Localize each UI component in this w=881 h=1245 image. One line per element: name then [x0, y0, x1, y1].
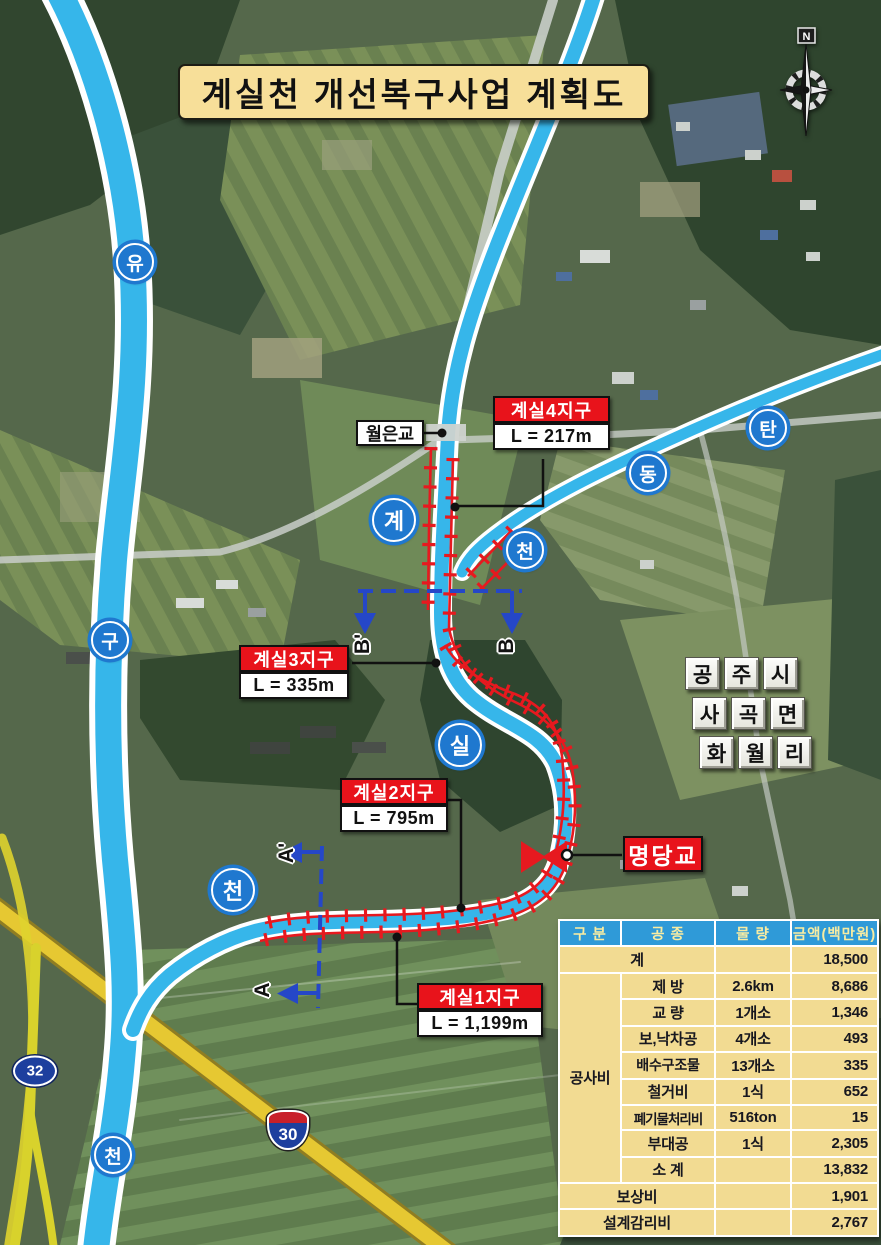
district-label-2: 계실2지구 L = 795m	[340, 778, 448, 832]
stream-marker-tandong-3: 천	[506, 531, 544, 569]
stream-marker-gyesil-1: 계	[372, 498, 416, 542]
col-category: 구 분	[559, 920, 621, 946]
section-letter-a-prime: A'	[275, 843, 299, 863]
admin-tile: 주	[724, 657, 759, 690]
wolleun-bridge-label: 월은교	[356, 420, 424, 446]
section-letter-b-prime: B'	[351, 634, 375, 654]
compass-rose-icon: N	[774, 26, 838, 138]
table-row-total: 계 18,500	[559, 946, 878, 972]
admin-tile: 공	[685, 657, 720, 690]
stream-marker-gyesil-3: 천	[211, 868, 255, 912]
col-quantity: 물 량	[715, 920, 791, 946]
section-letter-b: B	[495, 638, 519, 653]
admin-tile: 사	[692, 697, 727, 730]
table-row: 공사비 제 방 2.6km 8,686	[559, 973, 878, 999]
district-label-1: 계실1지구 L = 1,199m	[417, 983, 543, 1037]
admin-tile: 면	[770, 697, 805, 730]
page-title-text: 계실천 개선복구사업 계획도	[202, 68, 627, 116]
stream-marker-yugu-1: 유	[116, 243, 154, 281]
stream-marker-yugu-2: 구	[91, 621, 129, 659]
page-title: 계실천 개선복구사업 계획도	[178, 64, 650, 120]
admin-tile: 리	[777, 736, 812, 769]
table-row-compensation: 보상비 1,901	[559, 1183, 878, 1209]
myeongdang-bridge-label: 명당교	[623, 836, 703, 872]
admin-tile: 월	[738, 736, 773, 769]
col-work-type: 공 종	[621, 920, 715, 946]
district-label-4: 계실4지구 L = 217m	[493, 396, 610, 450]
table-row-design-supervision: 설계감리비 2,767	[559, 1209, 878, 1236]
section-letter-a: A	[251, 982, 275, 997]
stream-marker-yugu-3: 천	[94, 1136, 132, 1174]
cost-table-header-row: 구 분 공 종 물 량 금액(백만원)	[559, 920, 878, 946]
plan-map: N 계실천 개선복구사업 계획도 유 구 천 계 실 천 탄 동 천 월은교 명…	[0, 0, 881, 1245]
col-amount: 금액(백만원)	[791, 920, 878, 946]
admin-tile: 곡	[731, 697, 766, 730]
stream-marker-tandong-2: 동	[629, 454, 667, 492]
district-label-3: 계실3지구 L = 335m	[239, 645, 349, 699]
stream-marker-gyesil-2: 실	[438, 723, 482, 767]
stream-marker-tandong-1: 탄	[749, 409, 787, 447]
admin-tile: 시	[763, 657, 798, 690]
compass-north-label: N	[803, 31, 811, 43]
national-route-32-shield: 32	[13, 1056, 57, 1087]
admin-tile: 화	[699, 736, 734, 769]
construction-group-label: 공사비	[559, 973, 621, 1183]
cost-table: 구 분 공 종 물 량 금액(백만원) 계 18,500 공사비 제 방 2.6…	[558, 919, 879, 1237]
